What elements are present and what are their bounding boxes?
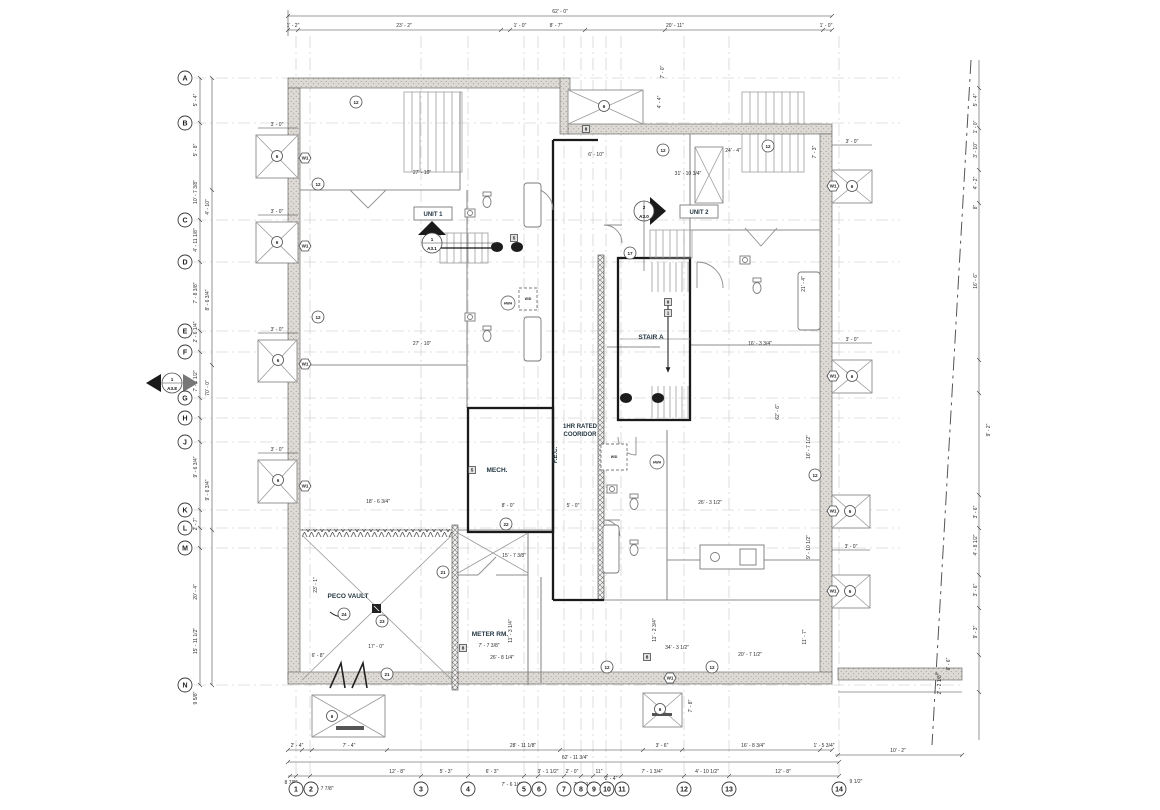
dim: 17' - 0" — [368, 644, 384, 650]
kitchen-counter — [700, 545, 764, 569]
grid-col-9: 9 — [592, 787, 596, 794]
dim: 8" — [973, 205, 979, 210]
grid-row-m: M — [182, 546, 188, 553]
dim: 70' - 0" — [205, 380, 211, 396]
room-label-fec: F.E.C. — [553, 447, 559, 464]
dim: 11' - 2 3/4" — [652, 618, 658, 642]
room-label-peco-vault: PECO VAULT — [328, 593, 369, 600]
marker-num: 1 — [171, 377, 174, 382]
marker-sheet: A3.0 — [639, 214, 649, 219]
dim: 9' - 3" — [973, 625, 979, 638]
dim: 20' - 4" — [193, 584, 199, 600]
dim: 8' - 6 3/4" — [205, 289, 211, 310]
sink — [465, 209, 475, 217]
hwh-label: HWH — [653, 461, 662, 465]
marker-sheet: A3.8 — [167, 386, 177, 391]
tag-w1: W1 — [830, 589, 837, 594]
grid-col-5: 5 — [522, 787, 526, 794]
dim: 7' - 8 3/8" — [193, 282, 199, 303]
dim: 7' - 4" — [343, 743, 356, 749]
tag-17: 17 — [627, 251, 633, 256]
dim: 23' - 1" — [313, 577, 319, 593]
keynote-8: 8 — [646, 655, 649, 660]
tag-23: 23 — [379, 619, 385, 624]
tag-w1: W1 — [302, 244, 309, 249]
dim: 2' - 4" — [291, 743, 304, 749]
dim: 7' - 1 3/4" — [641, 769, 662, 775]
tag-6: 6 — [276, 154, 279, 159]
room-label-stair-a: STAIR A — [638, 334, 664, 341]
dim: 26' - 3 1/2" — [698, 500, 722, 506]
dim: 10' - 7 3/8" — [193, 180, 199, 204]
grid-row-b: B — [182, 121, 187, 128]
tag-w1: W1 — [302, 156, 309, 161]
dim: 4' - 10 1/2" — [695, 769, 719, 775]
dim: 6' - 3" — [486, 769, 499, 775]
dim: 16' - 8 3/4" — [741, 743, 765, 749]
bathtub — [603, 525, 619, 573]
dim: 4' - 10" — [205, 199, 211, 215]
dim: 8' - 7" — [550, 23, 563, 29]
grid-row-e: E — [183, 329, 188, 336]
dim: 2' - 7" — [193, 517, 199, 530]
grid-lines — [194, 36, 960, 779]
tag-6: 6 — [849, 589, 852, 594]
grid-row-d: D — [182, 260, 187, 267]
hwh-unit1: HWH — [501, 296, 515, 310]
grid-col-11: 11 — [618, 787, 626, 794]
toilet — [483, 192, 491, 208]
dim: 26' - 8 1/4" — [490, 655, 514, 661]
dim: 21' - 4" — [801, 276, 807, 292]
dim: 18' - 6 3/4" — [366, 499, 390, 505]
dim: 3' - 0" — [271, 209, 284, 215]
marker-num: 1 — [431, 237, 434, 242]
sink — [607, 485, 617, 493]
tag-12: 12 — [604, 665, 610, 670]
tag-w1: W1 — [667, 676, 674, 681]
sink — [740, 256, 750, 264]
toilet — [630, 494, 638, 510]
dim: 9 1/2" — [850, 779, 863, 785]
dim: 28' - 11 1/8" — [510, 743, 536, 749]
tag-12: 12 — [812, 473, 818, 478]
property-line — [932, 60, 971, 745]
dim: 7' - 8" — [688, 699, 694, 712]
tag-6: 6 — [277, 358, 280, 363]
dim: 3' - 6" — [973, 505, 979, 518]
room-label-mech: MECH. — [487, 467, 508, 474]
mech-walls — [468, 408, 553, 532]
dim: 3' - 1 1/2" — [537, 769, 558, 775]
tag-24: 24 — [341, 612, 347, 617]
toilet — [630, 540, 638, 556]
dim: 11' - 7" — [802, 629, 808, 644]
rated-wall-vault — [452, 525, 458, 690]
tag-w1: W1 — [830, 374, 837, 379]
wd-label: W/D — [525, 297, 532, 301]
keynote-8: 8 — [462, 646, 465, 651]
dim: 31' - 10 3/4" — [675, 171, 702, 177]
hwh-label: HWH — [504, 302, 513, 306]
dim: 5' - 0" — [567, 503, 580, 509]
dim: 27' - 10" — [413, 170, 432, 176]
dim: 8' - 0" — [502, 503, 515, 509]
dim: 1' - 5 3/4" — [813, 743, 834, 749]
tag-22: 22 — [503, 522, 509, 527]
room-label-unit2: UNIT 2 — [689, 210, 709, 216]
tag-6: 6 — [849, 509, 852, 514]
dim: 5' - 4" — [193, 93, 199, 106]
interior-walls — [300, 92, 820, 690]
tag-12: 12 — [353, 100, 359, 105]
grid-col-14: 14 — [835, 787, 843, 794]
tag-12: 12 — [765, 144, 771, 149]
room-label-corridor-1: 1HR RATED — [563, 424, 598, 430]
dim: 5' - 4" — [973, 93, 979, 106]
room-labels: UNIT 1 UNIT 2 STAIR A MECH. PECO VAULT M… — [328, 205, 718, 638]
keynote-5: 5 — [471, 468, 474, 473]
plumbing-fixtures: HWH HWH W/D W/D — [465, 183, 820, 573]
grid-col-13: 13 — [725, 787, 733, 794]
dim: 2' - 2 1/8" — [937, 673, 943, 694]
grid-col-6: 6 — [537, 787, 541, 794]
dim: 20' - 7 1/2" — [738, 652, 762, 658]
window-bay-unit1 — [404, 92, 462, 172]
dim: 3' - 0" — [845, 544, 858, 550]
hwh-unit2: HWH — [650, 455, 664, 469]
tag-12: 12 — [315, 315, 321, 320]
grid-row-l: L — [183, 526, 188, 533]
grid-col-1: 1 — [294, 787, 298, 794]
dim: 5' - 3" — [440, 769, 453, 775]
dim: 12' - 8" — [389, 769, 405, 775]
tag-6: 6 — [659, 707, 662, 712]
tag-6: 6 — [277, 478, 280, 483]
dim: 3' - 6" — [656, 743, 669, 749]
dim: 3' - 0" — [271, 122, 284, 128]
dim: 11' - 3 1/4" — [508, 619, 514, 643]
tag-12: 12 — [709, 665, 715, 670]
bathtub — [524, 317, 541, 361]
dim: 4' - 2" — [973, 176, 979, 189]
dim: 4' - 8 1/2" — [973, 534, 979, 555]
grid-row-g: G — [182, 396, 188, 403]
toilet-dark — [621, 394, 632, 403]
grid-col-10: 10 — [603, 787, 611, 794]
grid-col-2: 2 — [309, 787, 313, 794]
tag-6: 6 — [851, 184, 854, 189]
marker-num: 2 — [643, 205, 646, 210]
vault-hatch-wall — [302, 529, 452, 537]
tag-6: 6 — [603, 104, 606, 109]
marker-sheet: A3.1 — [427, 246, 437, 251]
grid-row-c: C — [182, 218, 187, 225]
tag-6: 6 — [331, 714, 334, 719]
keynote-9: 9 — [667, 300, 670, 305]
dim: 9 5/8" — [193, 691, 199, 704]
tag-12: 12 — [315, 182, 321, 187]
tag-w1: W1 — [830, 509, 837, 514]
dim: 1' - 0" — [820, 23, 833, 29]
tag-w1: W1 — [302, 484, 309, 489]
dim: 6' - 8" — [312, 653, 325, 659]
dim: 3' - 6" — [973, 583, 979, 596]
dim: 10' - 2" — [890, 748, 906, 754]
dim: 2' - 6 1/4" — [193, 321, 199, 342]
floor-plan-sheet: HWH HWH W/D W/D 62' - 0" 1' - 2" 23' - 2… — [0, 0, 1160, 810]
dim: 16' - 7 1/2" — [806, 435, 812, 459]
dim: 16' - 6" — [973, 273, 979, 289]
sink — [465, 313, 475, 321]
keynote-8: 8 — [585, 127, 588, 132]
dim: 4' - 11 1/8" — [193, 228, 199, 252]
room-label-unit1: UNIT 1 — [423, 212, 443, 218]
room-label-corridor-2: COORIDOR — [564, 432, 598, 438]
washer-dryer-unit2: W/D — [601, 444, 627, 470]
stair-unit1 — [440, 233, 500, 263]
washer-dryer-unit1: W/D — [519, 288, 537, 310]
dim: 23' - 2" — [396, 23, 412, 29]
dim: 3' - 10" — [973, 142, 979, 158]
dim: 11" — [596, 769, 603, 775]
dim: 6' - 6" — [946, 657, 952, 670]
tag-w1: W1 — [830, 184, 837, 189]
section-marker-a38: 1 A3.8 — [146, 373, 198, 393]
grid-col-7: 7 — [562, 787, 566, 794]
dim: 9' - 10 1/2" — [806, 535, 812, 559]
keynote-5: 5 — [513, 236, 516, 241]
dim: 12' - 8" — [775, 769, 791, 775]
dim: 4' - 4" — [657, 95, 663, 108]
dim: 2' - 4" — [605, 776, 618, 782]
doors — [350, 188, 777, 575]
bathtub — [524, 183, 541, 227]
dim: 3' - 0" — [846, 139, 859, 145]
tag-12: 12 — [660, 148, 666, 153]
grid-col-12: 12 — [680, 787, 688, 794]
grid-col-3: 3 — [419, 787, 423, 794]
room-label-meter-rm: METER RM. — [472, 631, 509, 638]
dim: 16' - 3 3/4" — [748, 341, 772, 347]
dim: 9' - 6 3/4" — [205, 479, 211, 500]
sink-dark — [492, 243, 503, 252]
dim: 34' - 3 1/2" — [665, 645, 689, 651]
dim: 3' - 0" — [846, 337, 859, 343]
tag-w1: W1 — [302, 362, 309, 367]
dim: 2' - 0" — [566, 769, 579, 775]
dim: 3' - 0" — [271, 447, 284, 453]
tag-6: 6 — [851, 374, 854, 379]
grid-col-4: 4 — [466, 787, 470, 794]
dim: 27' - 10" — [413, 341, 432, 347]
floor-plan-drawing: HWH HWH W/D W/D 62' - 0" 1' - 2" 23' - 2… — [0, 0, 1160, 810]
dim: 20' - 11" — [666, 23, 684, 29]
tag-21: 21 — [440, 570, 446, 575]
dim: 7' - 7 3/8" — [478, 643, 499, 649]
dim: 62' - 0" — [552, 9, 568, 15]
grid-col-8: 8 — [579, 787, 583, 794]
dim: 1' - 0" — [973, 120, 979, 133]
dim: 62' - 11 3/4" — [562, 755, 588, 761]
grid-bubbles-cols: 1 2 3 4 5 6 7 8 9 10 11 12 13 14 — [289, 782, 846, 796]
toilet — [753, 278, 761, 294]
dim: 1' - 2" — [287, 23, 300, 29]
wd-label: W/D — [611, 455, 618, 459]
grid-row-j: J — [183, 440, 187, 447]
balconies-right — [832, 170, 872, 608]
tag-21: 21 — [384, 672, 390, 677]
dim: 15' - 11 1/2" — [193, 628, 199, 654]
sink-dark — [512, 243, 523, 252]
grid-row-a: A — [182, 76, 187, 83]
stoop-step — [336, 726, 364, 730]
dim: 9' - 2" — [986, 423, 992, 436]
dim: 62' - 6" — [775, 404, 781, 420]
toilet — [483, 326, 491, 342]
dim: 5' - 8" — [193, 143, 199, 156]
dim: 3' - 0" — [271, 327, 284, 333]
grid-row-n: N — [182, 683, 187, 690]
dim: 7' - 3" — [812, 145, 818, 158]
dim: 1' - 0" — [514, 23, 527, 29]
grid-row-h: H — [182, 416, 187, 423]
dim: 7' - 0" — [660, 65, 666, 78]
dim: 15' - 7 3/8" — [502, 553, 526, 559]
toilet-dark — [653, 394, 664, 403]
grid-row-f: F — [183, 350, 188, 357]
stair-unit2 — [650, 230, 692, 258]
grid-row-k: K — [182, 508, 187, 515]
keynote-1: 1 — [667, 311, 670, 316]
dim: 9' - 6 3/4" — [193, 456, 199, 477]
dim: 24' - 4" — [725, 148, 741, 154]
dim: 6' - 10" — [588, 152, 604, 158]
tag-6: 6 — [276, 240, 279, 245]
